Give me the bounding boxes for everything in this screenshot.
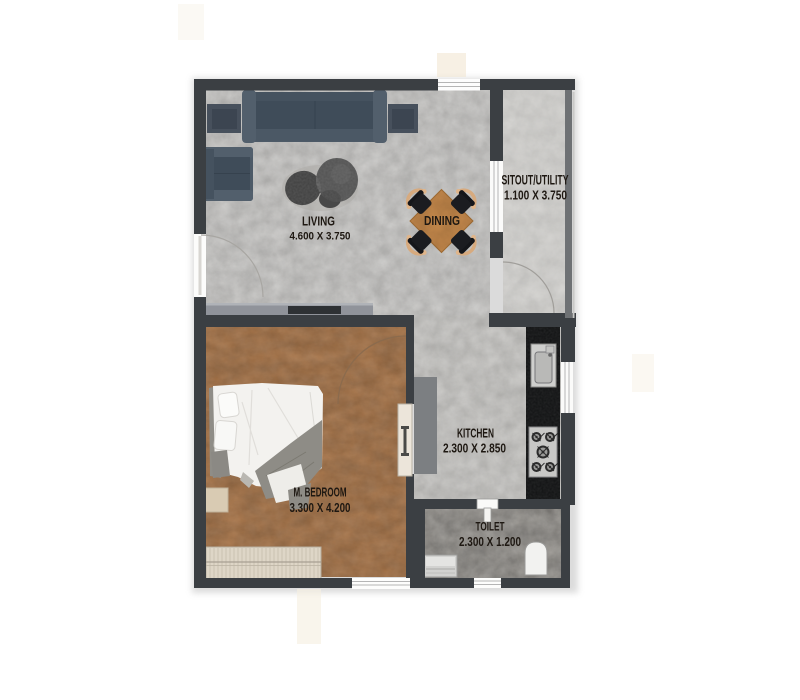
- svg-text:DINING: DINING: [424, 214, 460, 228]
- svg-text:TOILET: TOILET: [476, 520, 505, 534]
- svg-text:SITOUT/UTILITY: SITOUT/UTILITY: [502, 173, 569, 188]
- svg-text:2.300 X 1.200: 2.300 X 1.200: [459, 534, 521, 549]
- svg-text:1.100 X 3.750: 1.100 X 3.750: [504, 188, 567, 203]
- svg-text:4.600 X 3.750: 4.600 X 3.750: [290, 231, 351, 243]
- svg-text:M. BEDROOM: M. BEDROOM: [294, 486, 347, 500]
- svg-text:3.300 X 4.200: 3.300 X 4.200: [290, 500, 351, 515]
- svg-text:2.300 X 2.850: 2.300 X 2.850: [443, 442, 506, 456]
- svg-text:LIVING: LIVING: [302, 214, 335, 229]
- svg-text:KITCHEN: KITCHEN: [457, 426, 494, 441]
